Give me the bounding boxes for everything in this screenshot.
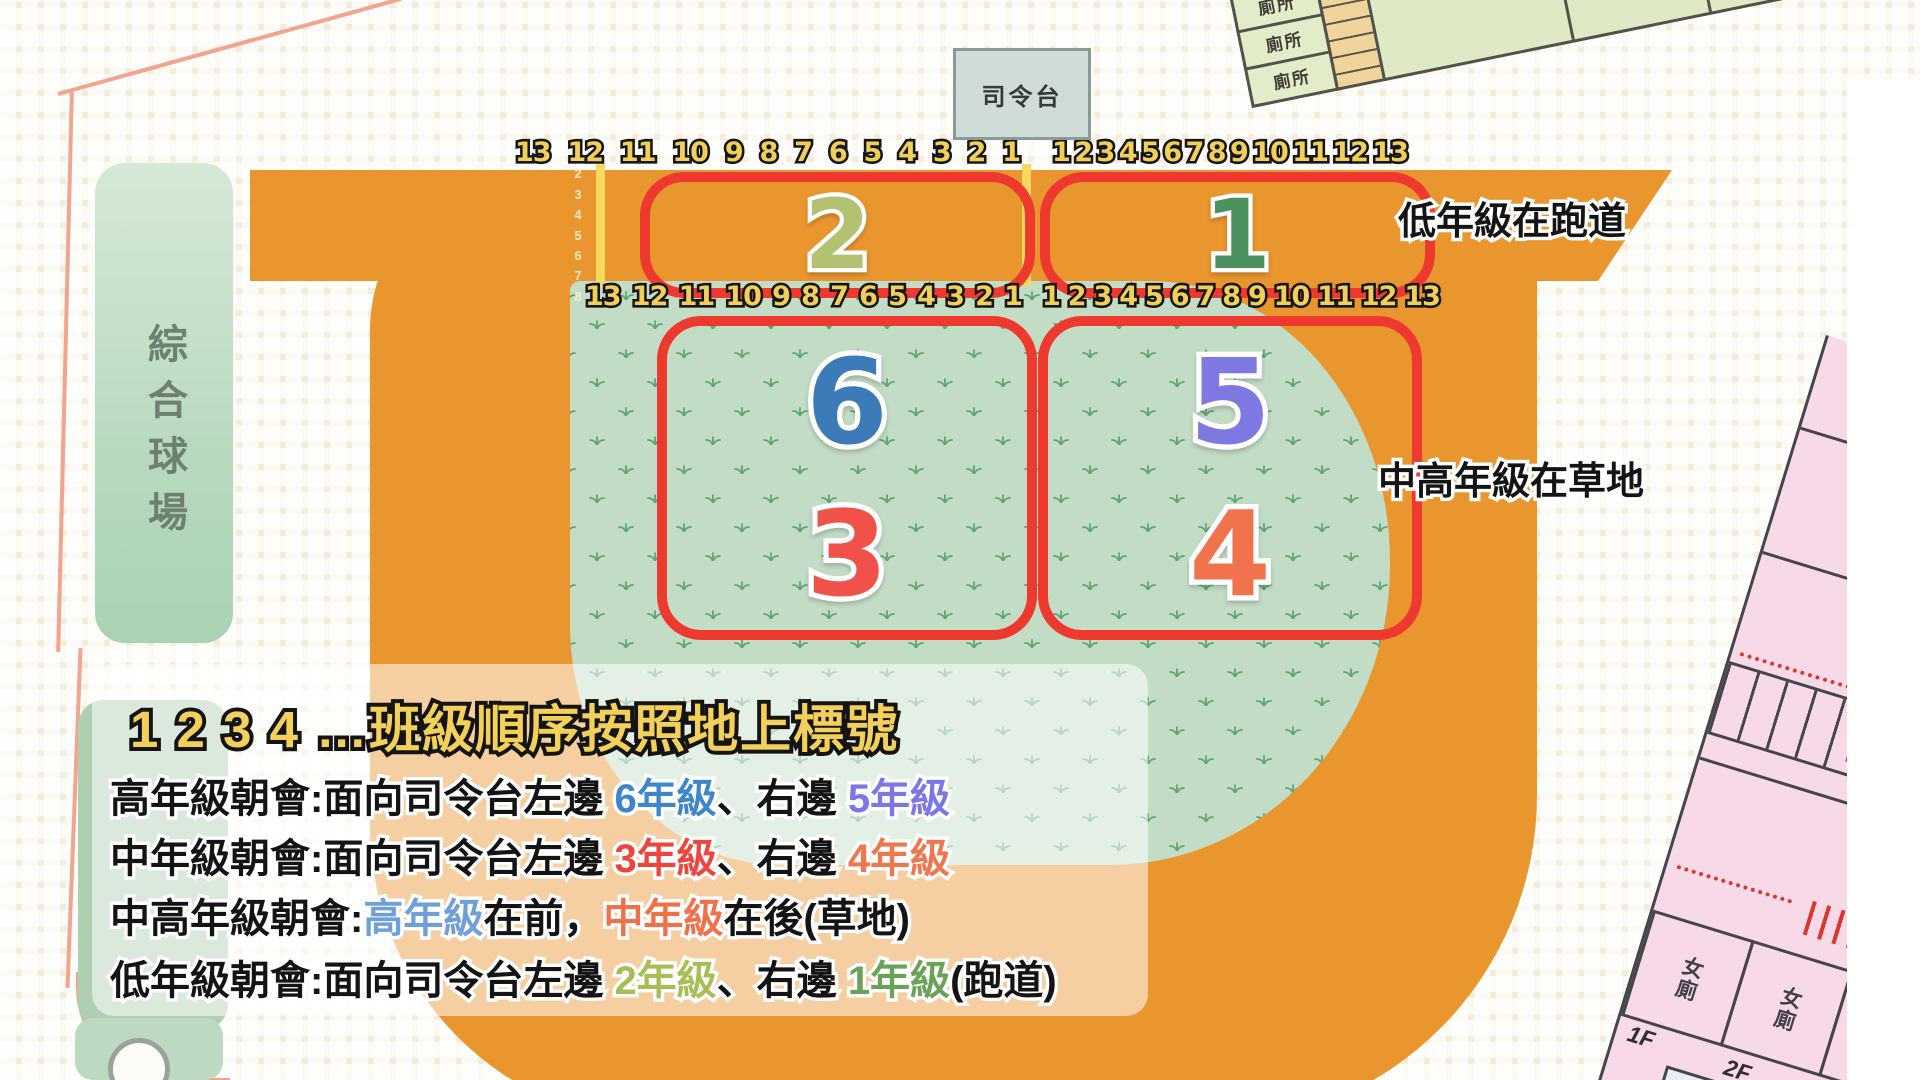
grass-tuft-icon <box>1169 664 1185 675</box>
legend-line-mid-senior: 中高年級朝會:高年級在前，中年級在後(草地) <box>110 886 910 944</box>
position-number: 8 <box>1208 139 1226 166</box>
position-number: 9 <box>1230 139 1248 166</box>
grass-tuft-icon <box>589 490 605 501</box>
grass-tuft-icon <box>1314 693 1330 704</box>
position-number: 13 <box>1372 139 1408 166</box>
legend-text-segment: 6年級 <box>614 777 716 821</box>
legend-text-segment: 3年級 <box>614 837 716 881</box>
position-number: 7 <box>1186 139 1204 166</box>
position-number: 4 <box>1119 283 1137 310</box>
position-number: 2 <box>1068 283 1086 310</box>
position-number: 2 <box>975 283 993 310</box>
position-number: 8 <box>759 139 777 166</box>
position-number: 12 <box>1361 283 1397 310</box>
position-number: 4 <box>917 283 935 310</box>
position-number: 12 <box>1332 139 1368 166</box>
room-divider <box>1686 0 1712 12</box>
position-number: 10 <box>1252 139 1288 166</box>
zone-grade2-number: 2 <box>804 187 871 283</box>
grass-tuft-icon <box>1256 751 1272 762</box>
field-positions-right: 12345678910111213 <box>1042 283 1440 310</box>
legend-line-senior: 高年級朝會:面向司令台左邊 6年級、右邊 5年級 <box>110 766 950 824</box>
position-number: 2 <box>968 139 986 166</box>
floor-label-2f: 2F <box>1721 1054 1755 1080</box>
start-line-divider <box>596 164 605 286</box>
position-number: 5 <box>1141 139 1159 166</box>
position-number: 7 <box>794 139 812 166</box>
position-number: 3 <box>933 139 951 166</box>
grass-tuft-icon <box>1285 838 1301 849</box>
multi-purpose-court: 綜合球場 <box>95 163 233 643</box>
toilet-label: 廁所 <box>1271 62 1313 94</box>
position-number: 8 <box>1222 283 1240 310</box>
grass-tuft-icon <box>1343 838 1359 849</box>
grass-tuft-icon <box>1169 838 1185 849</box>
grass-tuft-icon <box>589 432 605 443</box>
legend-text-segment: 高年級 <box>363 897 483 941</box>
position-number: 1 <box>1052 139 1070 166</box>
grass-tuft-icon <box>1256 809 1272 820</box>
red-handwriting <box>1676 855 1795 903</box>
toilet-label: 廁所 <box>1263 24 1305 56</box>
position-number: 4 <box>898 139 916 166</box>
track-positions-left: 13121110987654321 <box>515 139 1020 166</box>
legend-text-segment: 在前， <box>483 897 603 941</box>
legend-text-segment: 低年級朝會:面向司令台左邊 <box>110 959 614 1003</box>
zone-grade5-grade4-field: 5 4 <box>1038 316 1422 640</box>
women-toilet-label: 女廁 <box>1667 952 1709 1005</box>
position-number: 10 <box>725 283 761 310</box>
position-number: 6 <box>829 139 847 166</box>
grass-tuft-icon <box>1169 722 1185 733</box>
legend-text-segment: 、右邊 <box>717 777 848 821</box>
position-number: 6 <box>1163 139 1181 166</box>
position-number: 7 <box>830 283 848 310</box>
grass-tuft-icon <box>1256 693 1272 704</box>
position-number: 4 <box>1119 139 1137 166</box>
zone-grade6-number: 6 <box>806 343 888 461</box>
position-number: 11 <box>679 283 715 310</box>
grass-tuft-icon <box>1227 780 1243 791</box>
position-number: 2 <box>1074 139 1092 166</box>
grass-tuft-icon <box>1227 838 1243 849</box>
position-number: 12 <box>567 139 603 166</box>
map-edge-blank <box>1847 80 1920 1080</box>
position-number: 10 <box>672 139 708 166</box>
position-number: 11 <box>1317 283 1353 310</box>
position-number: 11 <box>620 139 656 166</box>
legend-text-segment: 2年級 <box>614 959 716 1003</box>
legend-text-segment: 中年級 <box>603 897 723 941</box>
track-annotation: 低年級在跑道 <box>1398 190 1626 245</box>
grass-tuft-icon <box>618 345 634 356</box>
legend-text-segment: (跑道) <box>950 959 1057 1003</box>
grass-tuft-icon <box>1285 664 1301 675</box>
grass-tuft-icon <box>1198 809 1214 820</box>
grass-tuft-icon <box>1343 664 1359 675</box>
position-number: 3 <box>1097 139 1115 166</box>
grass-tuft-icon <box>618 577 634 588</box>
position-number: 10 <box>1274 283 1310 310</box>
grass-tuft-icon <box>570 461 576 472</box>
position-number: 6 <box>859 283 877 310</box>
legend-text-segment: 、右邊 <box>717 959 848 1003</box>
grass-tuft-icon <box>570 577 576 588</box>
legend-line-junior: 低年級朝會:面向司令台左邊 2年級、右邊 1年級(跑道) <box>110 948 1057 1006</box>
grass-tuft-icon <box>570 519 576 530</box>
legend-text-segment: 5年級 <box>848 777 950 821</box>
grass-tuft-icon <box>618 635 634 646</box>
position-number: 9 <box>1248 283 1266 310</box>
grass-tuft-icon <box>589 374 605 385</box>
position-number: 12 <box>632 283 668 310</box>
position-number: 11 <box>1292 139 1328 166</box>
legend-text-segment: 4年級 <box>848 837 950 881</box>
position-number: 13 <box>1404 283 1440 310</box>
grass-tuft-icon <box>1285 722 1301 733</box>
legend-line-middle: 中年級朝會:面向司令台左邊 3年級、右邊 4年級 <box>110 826 950 884</box>
zone-grade1-track: 1 <box>1040 172 1435 298</box>
grass-tuft-icon <box>1372 693 1388 704</box>
position-number: 13 <box>585 283 621 310</box>
legend-text-segment: 1年級 <box>848 959 950 1003</box>
room-divider <box>1549 0 1575 40</box>
zone-grade2-track: 2 <box>640 172 1035 298</box>
grass-tuft-icon <box>618 519 634 530</box>
zone-grade6-grade3-field: 6 3 <box>657 316 1037 640</box>
grass-tuft-icon <box>1314 809 1330 820</box>
grass-tuft-icon <box>1024 635 1040 646</box>
grass-tuft-icon <box>1169 780 1185 791</box>
grass-tuft-icon <box>1024 287 1040 298</box>
legend-text-segment: 高年級朝會:面向司令台左邊 <box>110 777 614 821</box>
position-number: 1 <box>1004 283 1022 310</box>
grass-tuft-icon <box>589 316 605 327</box>
grass-tuft-icon <box>1198 751 1214 762</box>
grass-tuft-icon <box>1372 809 1388 820</box>
legend-title: 1 2 3 4 …班級順序按照地上標號 <box>130 688 899 762</box>
position-number: 5 <box>864 139 882 166</box>
grass-tuft-icon <box>570 345 576 356</box>
court-label: 綜合球場 <box>135 323 193 643</box>
legend-text-segment: 在後(草地) <box>723 897 910 941</box>
toilet-label: 廁所 <box>1255 0 1297 19</box>
grass-tuft-icon <box>1285 780 1301 791</box>
grass-tuft-icon <box>1314 751 1330 762</box>
legend-text-segment: 中高年級朝會: <box>110 897 363 941</box>
legend-text-segment: 、右邊 <box>717 837 848 881</box>
position-number: 9 <box>725 139 743 166</box>
position-number: 7 <box>1197 283 1215 310</box>
zone-grade1-number: 1 <box>1204 187 1271 283</box>
grass-tuft-icon <box>1343 722 1359 733</box>
field-positions-left: 13121110987654321 <box>585 283 1022 310</box>
grass-tuft-icon <box>570 403 576 414</box>
position-number: 8 <box>801 283 819 310</box>
women-toilet-label: 女廁 <box>1765 982 1807 1035</box>
grass-tuft-icon <box>618 403 634 414</box>
position-number: 3 <box>946 283 964 310</box>
grass-tuft-icon <box>1343 780 1359 791</box>
campus-assembly-map: 綜合球場 1 2 3 4 5 6 7 8 13121110987654321 1… <box>0 0 1920 1080</box>
grass-tuft-icon <box>570 635 576 646</box>
position-number: 13 <box>515 139 551 166</box>
position-number: 5 <box>888 283 906 310</box>
zone-grade3-number: 3 <box>806 495 888 613</box>
position-number: 5 <box>1145 283 1163 310</box>
grass-tuft-icon <box>1227 722 1243 733</box>
grass-tuft-icon <box>589 606 605 617</box>
track-positions-right: 12345678910111213 <box>1052 139 1408 166</box>
grass-tuft-icon <box>1372 751 1388 762</box>
field-annotation: 中高年級在草地 <box>1378 450 1644 505</box>
grass-tuft-icon <box>618 461 634 472</box>
grass-tuft-icon <box>589 548 605 559</box>
grass-tuft-icon <box>1227 664 1243 675</box>
zone-grade5-number: 5 <box>1189 343 1271 461</box>
position-number: 1 <box>1042 283 1060 310</box>
grass-tuft-icon <box>1198 693 1214 704</box>
command-stage-label: 司令台 <box>982 77 1063 112</box>
position-number: 1 <box>1002 139 1020 166</box>
legend-text-segment: 中年級朝會:面向司令台左邊 <box>110 837 614 881</box>
zone-grade4-number: 4 <box>1189 495 1271 613</box>
grass-tuft-icon <box>647 316 663 327</box>
command-stage: 司令台 <box>953 48 1091 140</box>
position-number: 3 <box>1094 283 1112 310</box>
position-number: 9 <box>772 283 790 310</box>
position-number: 6 <box>1171 283 1189 310</box>
